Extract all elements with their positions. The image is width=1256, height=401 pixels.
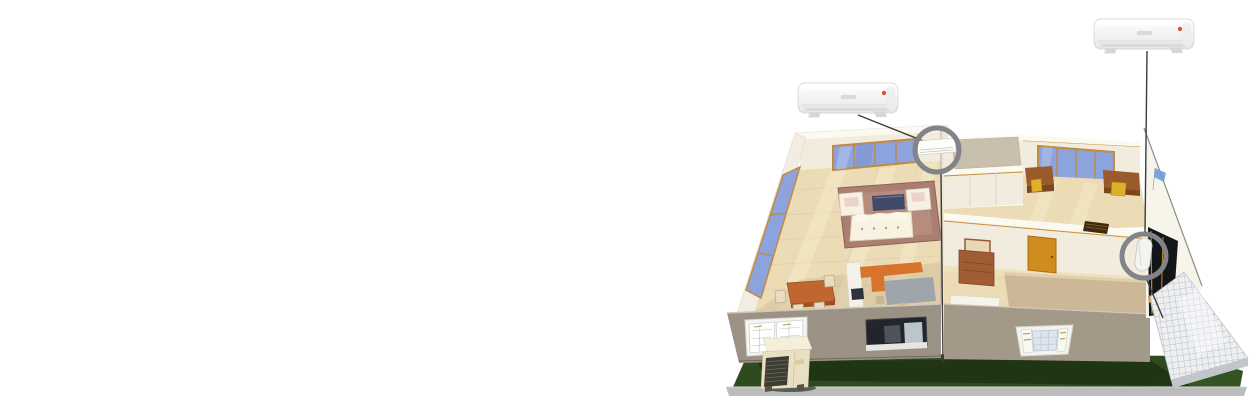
kitchen-window: [866, 317, 927, 351]
ac-system-house-illustration: [0, 0, 1256, 401]
bedroom-door: [1028, 236, 1056, 273]
office-chair: [1111, 182, 1126, 196]
ac-product-right[interactable]: [1094, 19, 1194, 54]
bedroom: [944, 213, 1152, 318]
dresser: [959, 250, 994, 286]
bay-window: [1016, 325, 1073, 356]
hallway-wall: [944, 171, 1023, 209]
indoor-unit-left-installed: [917, 138, 956, 155]
stove: [851, 288, 864, 300]
office-cabinet: [1031, 179, 1042, 192]
page-canvas: [0, 0, 1256, 401]
ac-product-left[interactable]: [798, 83, 898, 118]
door-knob: [1051, 256, 1054, 259]
closet-top: [952, 137, 1021, 169]
outdoor-unit: [761, 336, 816, 392]
office: [1023, 135, 1148, 231]
kitchen-table: [884, 277, 936, 305]
